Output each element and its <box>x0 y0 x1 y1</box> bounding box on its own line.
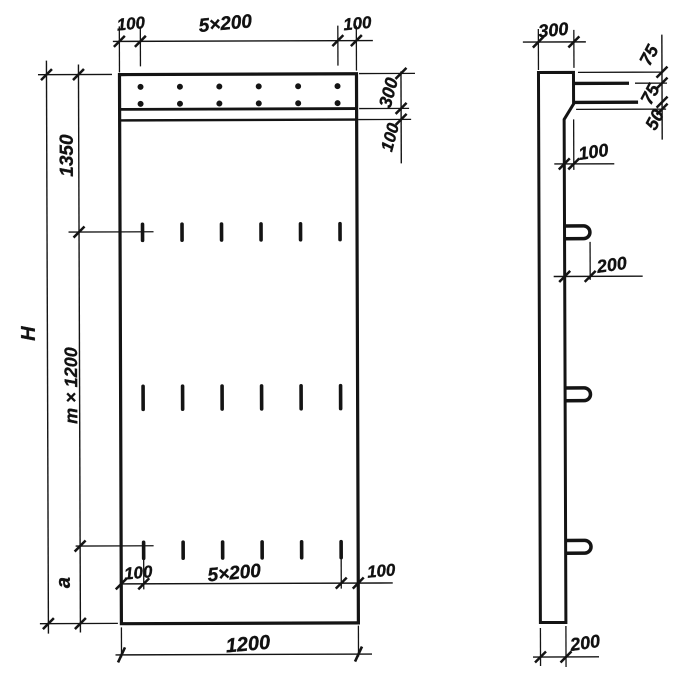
svg-text:100: 100 <box>366 560 397 582</box>
svg-text:H: H <box>18 326 40 341</box>
svg-text:200: 200 <box>568 631 602 655</box>
svg-text:100: 100 <box>342 13 373 35</box>
svg-text:200: 200 <box>595 253 629 277</box>
svg-text:100: 100 <box>577 140 610 164</box>
svg-text:5×200: 5×200 <box>207 561 262 587</box>
svg-text:50: 50 <box>641 106 668 133</box>
svg-text:100: 100 <box>123 562 154 584</box>
svg-text:300: 300 <box>537 19 569 42</box>
svg-text:300: 300 <box>375 76 402 110</box>
svg-text:1200: 1200 <box>225 632 271 658</box>
svg-text:a: a <box>53 577 75 588</box>
svg-text:100: 100 <box>377 121 403 154</box>
svg-text:5×200: 5×200 <box>198 11 253 37</box>
svg-text:m × 1200: m × 1200 <box>61 347 81 424</box>
svg-text:100: 100 <box>116 13 147 35</box>
svg-text:75: 75 <box>636 41 663 69</box>
svg-text:1350: 1350 <box>57 134 78 177</box>
